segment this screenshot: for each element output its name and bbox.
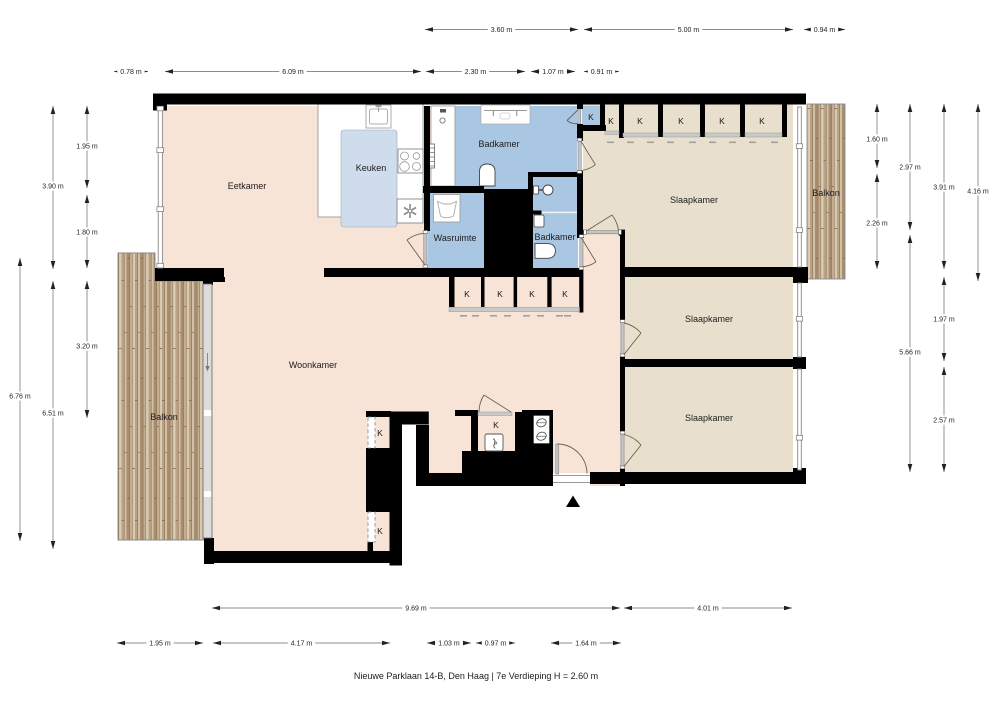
svg-text:3.60 m: 3.60 m	[491, 27, 513, 34]
svg-text:Badkamer: Badkamer	[534, 232, 575, 242]
svg-text:5.66 m: 5.66 m	[899, 350, 921, 357]
svg-text:2.57 m: 2.57 m	[933, 418, 955, 425]
svg-text:K: K	[678, 116, 684, 126]
svg-text:4.01 m: 4.01 m	[697, 606, 719, 613]
svg-text:4.16 m: 4.16 m	[967, 189, 989, 196]
svg-text:4.17 m: 4.17 m	[291, 641, 313, 648]
svg-text:2.30 m: 2.30 m	[465, 69, 487, 76]
svg-text:3.90 m: 3.90 m	[42, 184, 64, 191]
svg-text:Balkon: Balkon	[150, 412, 178, 422]
svg-text:K: K	[719, 116, 725, 126]
svg-text:Nieuwe Parklaan 14-B, Den Haag: Nieuwe Parklaan 14-B, Den Haag | 7e Verd…	[354, 671, 598, 681]
svg-text:3.91 m: 3.91 m	[933, 185, 955, 192]
svg-text:K: K	[562, 289, 568, 299]
svg-text:K: K	[377, 526, 383, 536]
svg-text:0.94 m: 0.94 m	[814, 27, 836, 34]
svg-text:9.69 m: 9.69 m	[405, 606, 427, 613]
svg-text:1.97 m: 1.97 m	[933, 317, 955, 324]
svg-text:6.51 m: 6.51 m	[42, 411, 64, 418]
svg-text:K: K	[493, 420, 499, 430]
svg-text:K: K	[497, 289, 503, 299]
svg-text:K: K	[608, 116, 614, 126]
svg-text:K: K	[529, 289, 535, 299]
svg-text:0.91 m: 0.91 m	[591, 69, 613, 76]
svg-text:1.80 m: 1.80 m	[76, 230, 98, 237]
svg-text:6.09 m: 6.09 m	[282, 69, 304, 76]
svg-text:Badkamer: Badkamer	[478, 139, 519, 149]
svg-text:1.95 m: 1.95 m	[76, 144, 98, 151]
svg-text:K: K	[759, 116, 765, 126]
svg-text:0.97 m: 0.97 m	[485, 641, 507, 648]
svg-text:K: K	[637, 116, 643, 126]
svg-text:Eetkamer: Eetkamer	[228, 181, 267, 191]
svg-text:2.26 m: 2.26 m	[866, 221, 888, 228]
svg-text:K: K	[377, 428, 383, 438]
svg-text:1.60 m: 1.60 m	[866, 137, 888, 144]
svg-text:2.97 m: 2.97 m	[899, 165, 921, 172]
svg-text:Slaapkamer: Slaapkamer	[685, 314, 733, 324]
svg-text:3.20 m: 3.20 m	[76, 344, 98, 351]
svg-text:K: K	[464, 289, 470, 299]
svg-text:K: K	[588, 112, 594, 122]
svg-text:Woonkamer: Woonkamer	[289, 360, 337, 370]
svg-text:Wasruimte: Wasruimte	[434, 233, 477, 243]
svg-text:Keuken: Keuken	[356, 163, 387, 173]
svg-text:5.00 m: 5.00 m	[678, 27, 700, 34]
svg-text:1.03 m: 1.03 m	[438, 641, 460, 648]
svg-text:1.64 m: 1.64 m	[575, 641, 597, 648]
svg-text:Balkon: Balkon	[812, 188, 840, 198]
svg-text:0.78 m: 0.78 m	[120, 69, 142, 76]
svg-text:Slaapkamer: Slaapkamer	[685, 413, 733, 423]
svg-text:6.76 m: 6.76 m	[9, 394, 31, 401]
svg-text:Slaapkamer: Slaapkamer	[670, 195, 718, 205]
svg-text:1.07 m: 1.07 m	[542, 69, 564, 76]
svg-text:1.95 m: 1.95 m	[149, 641, 171, 648]
